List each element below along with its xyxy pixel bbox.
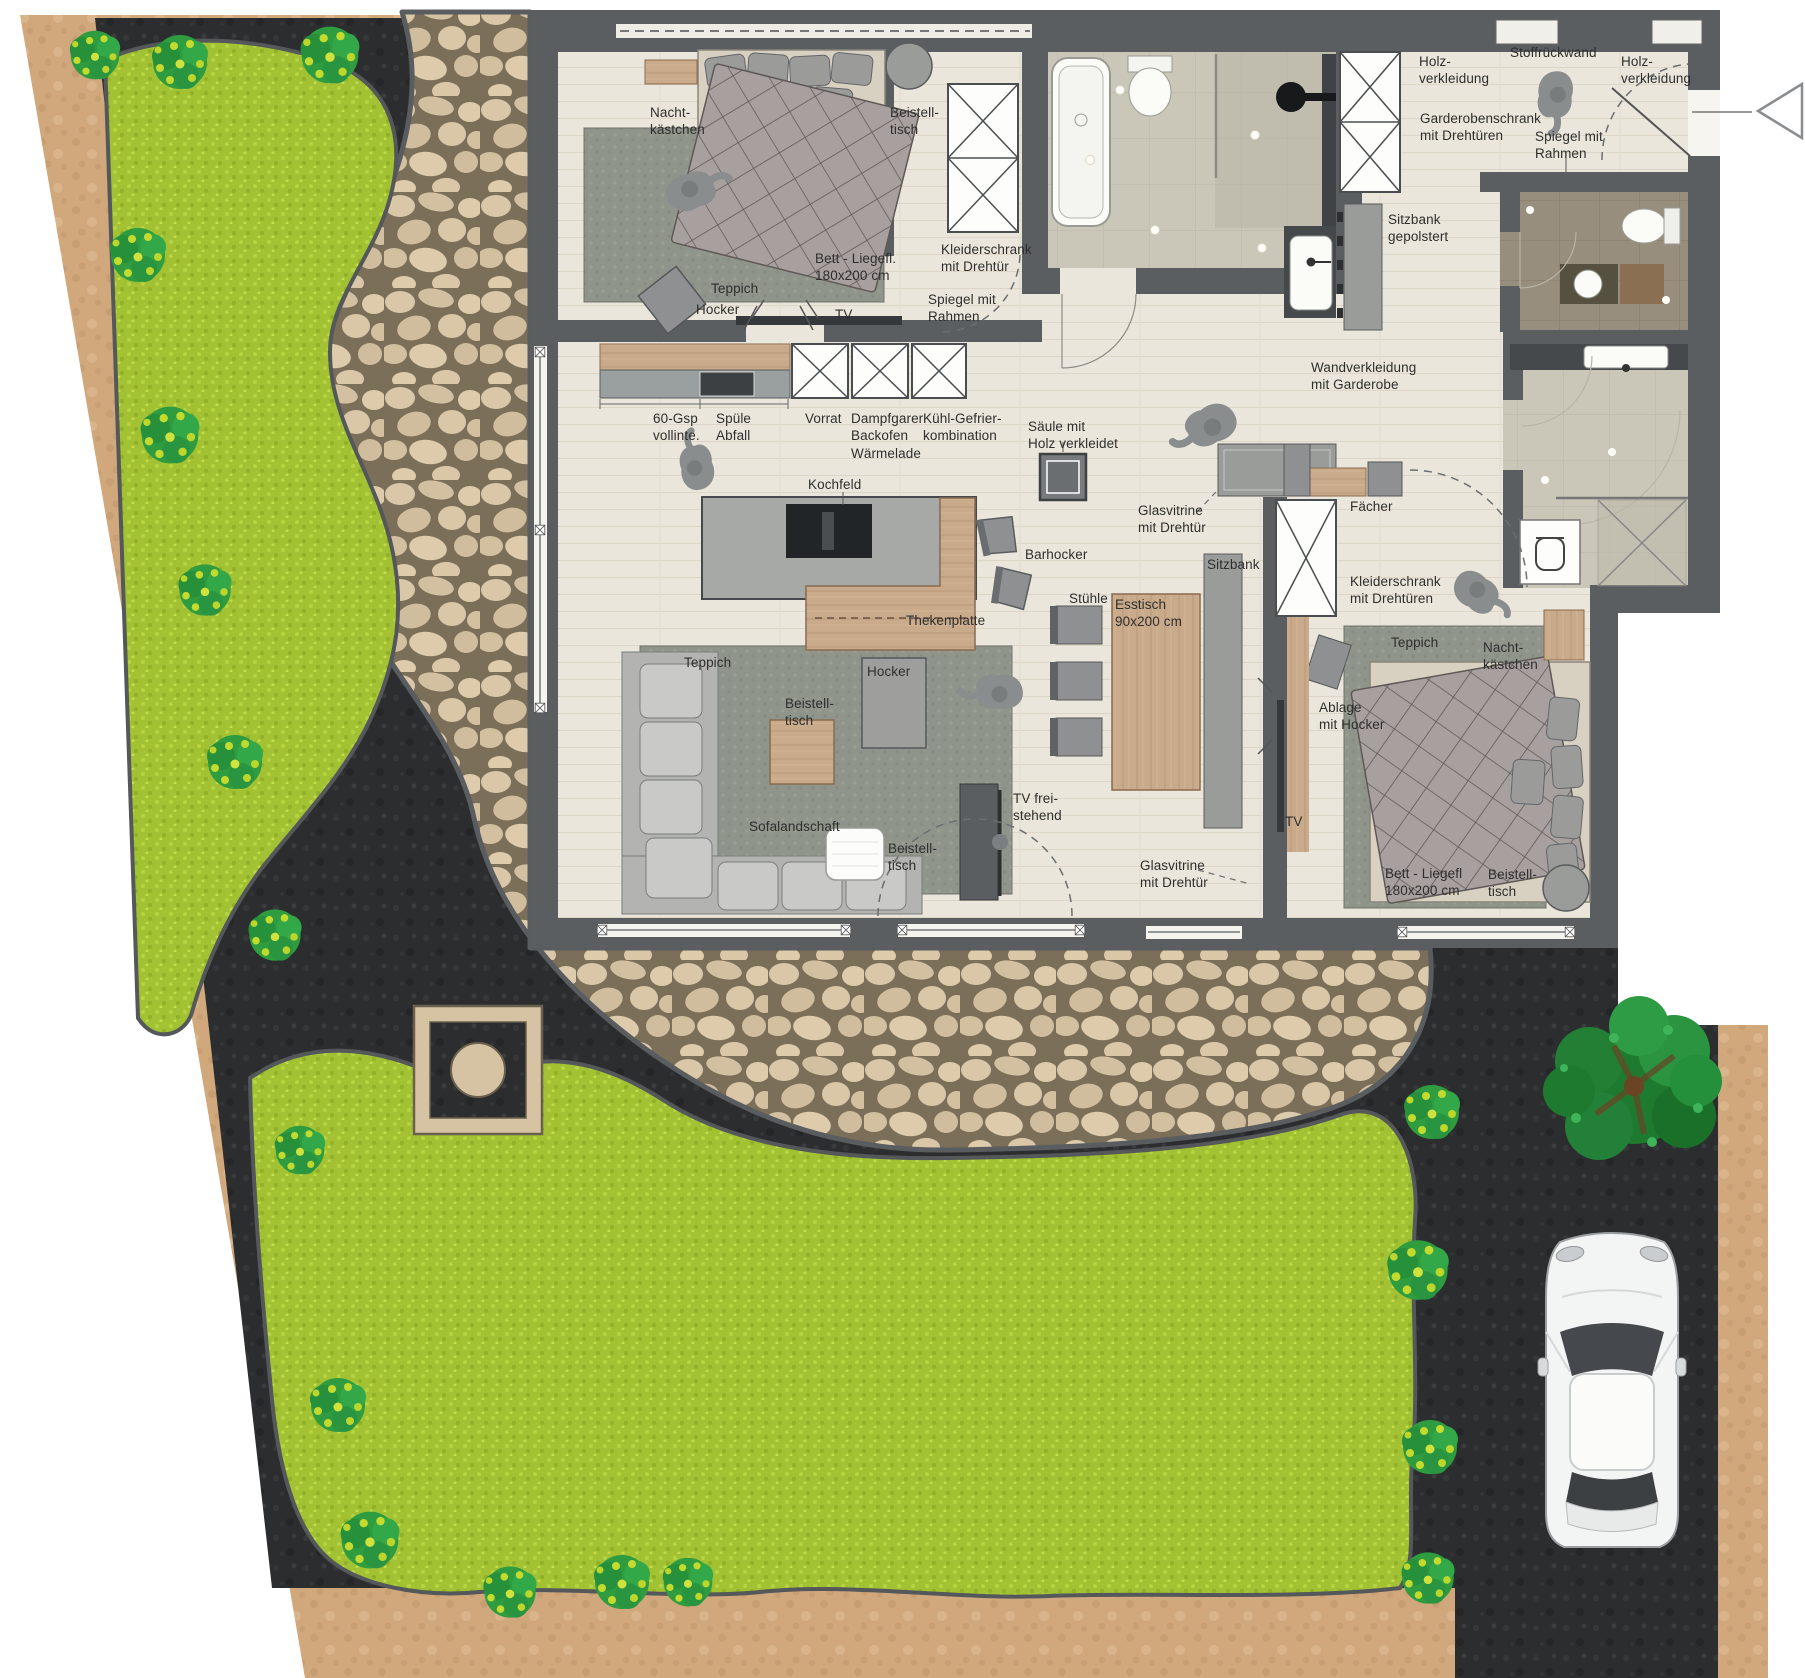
fire-pit — [414, 1006, 542, 1134]
hall-bench — [1344, 204, 1382, 330]
bed1-side-table — [886, 43, 932, 89]
entry-direction-arrow — [1758, 84, 1802, 138]
bed1-nightstand — [645, 60, 697, 84]
shower-zone — [1215, 52, 1336, 228]
building — [530, 10, 1802, 948]
dining-table — [1112, 594, 1200, 790]
living-side-table-white — [826, 828, 884, 880]
dining-chairs — [1050, 606, 1102, 756]
living-hocker — [862, 658, 926, 748]
wood-column — [1040, 454, 1086, 500]
living-side-table-wood — [770, 720, 834, 784]
bed2-nightstand — [1544, 610, 1584, 660]
bed2-side-table — [1543, 865, 1589, 911]
dining-bench — [1204, 554, 1242, 828]
bed2-wood-paneling — [1287, 616, 1309, 852]
guest-toilet — [1622, 209, 1666, 243]
kitchen-counter-wood — [600, 344, 790, 370]
bath-washbasin — [1290, 236, 1332, 310]
parked-car — [1538, 1233, 1686, 1547]
bed2-tv-panel — [1277, 700, 1284, 832]
guest-washbasin — [1574, 270, 1602, 298]
tv-freestanding — [960, 784, 1008, 900]
kitchen-tall-units — [792, 344, 966, 398]
kitchen-counter — [600, 370, 790, 398]
floor-plan-image: Nacht- kästchenBeistell- tischBett - Lie… — [0, 0, 1805, 1678]
bed1-wardrobe — [948, 84, 1018, 232]
toilet — [1128, 56, 1172, 116]
wc-panel — [1520, 520, 1580, 584]
kitchen-sink — [700, 372, 754, 396]
faecher-shelf — [1308, 468, 1366, 496]
bed1-tv-panel — [736, 316, 902, 325]
bed2-wardrobe-xbox — [1276, 500, 1336, 616]
site-plan-graphic — [0, 0, 1805, 1678]
